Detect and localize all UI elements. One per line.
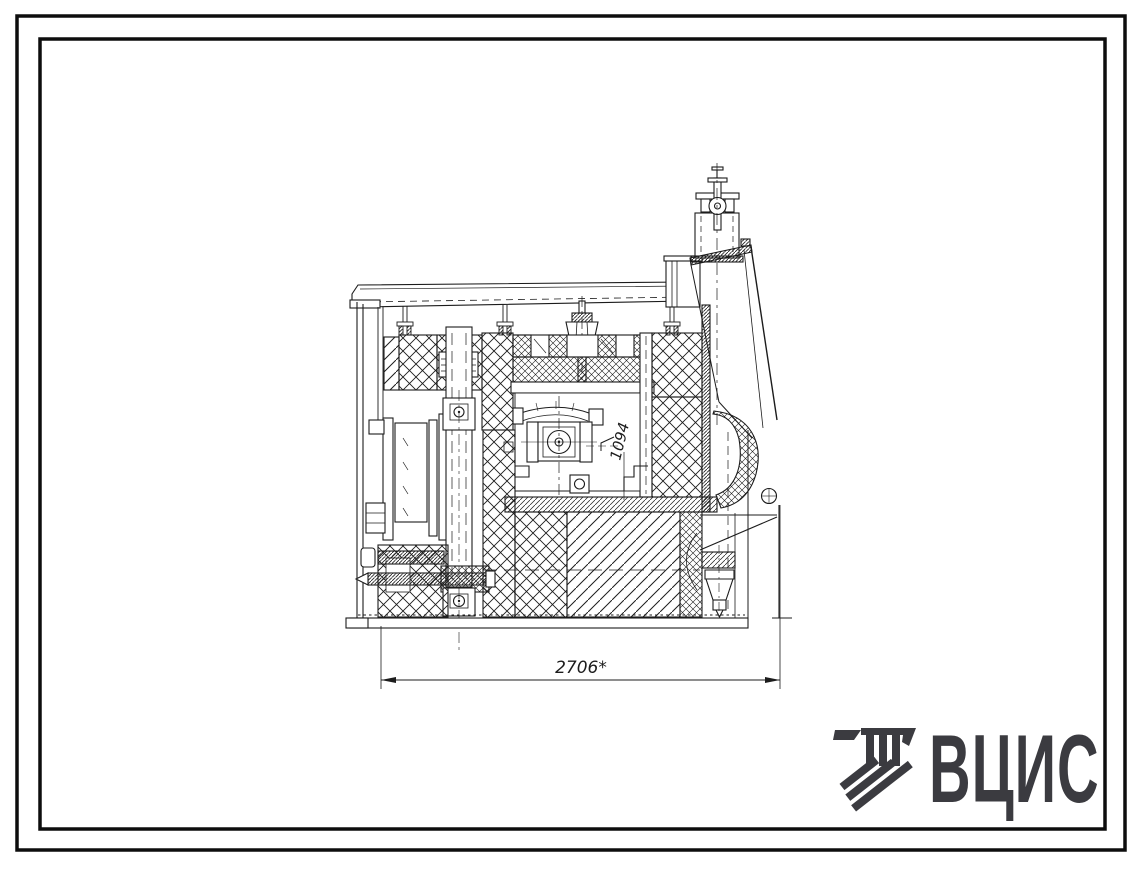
drawing-sheet: 2706* 1094 ВЦИС — [0, 0, 1139, 869]
roof-assembly — [350, 282, 688, 308]
dimension-label-width: 2706* — [555, 658, 607, 678]
vcis-logo-text: ВЦИС — [929, 715, 1100, 823]
dimension-arrow-right — [765, 677, 780, 683]
hearth-slab — [505, 497, 717, 512]
vcis-logo-symbol — [833, 728, 916, 812]
vcis-logo: ВЦИС — [833, 715, 1100, 823]
dimension-arrow-left — [381, 677, 396, 683]
discharge-funnel — [702, 545, 735, 620]
furnace-cross-section — [346, 163, 792, 650]
furnace-drawing-svg: 2706* 1094 ВЦИС — [0, 0, 1139, 869]
